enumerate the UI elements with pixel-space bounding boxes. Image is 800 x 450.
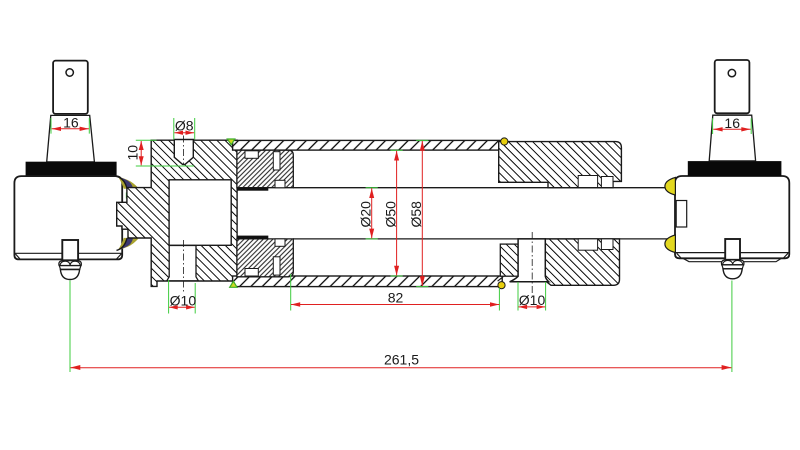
svg-text:16: 16 (724, 115, 740, 131)
svg-text:Ø58: Ø58 (408, 201, 424, 228)
svg-text:10: 10 (125, 145, 141, 161)
svg-text:Ø10: Ø10 (170, 293, 197, 309)
svg-text:Ø50: Ø50 (382, 201, 398, 228)
svg-text:82: 82 (388, 290, 404, 306)
svg-text:Ø20: Ø20 (357, 201, 373, 228)
svg-text:Ø8: Ø8 (175, 118, 194, 134)
svg-text:16: 16 (63, 114, 79, 130)
svg-text:261,5: 261,5 (384, 351, 419, 367)
svg-text:Ø10: Ø10 (519, 292, 546, 308)
